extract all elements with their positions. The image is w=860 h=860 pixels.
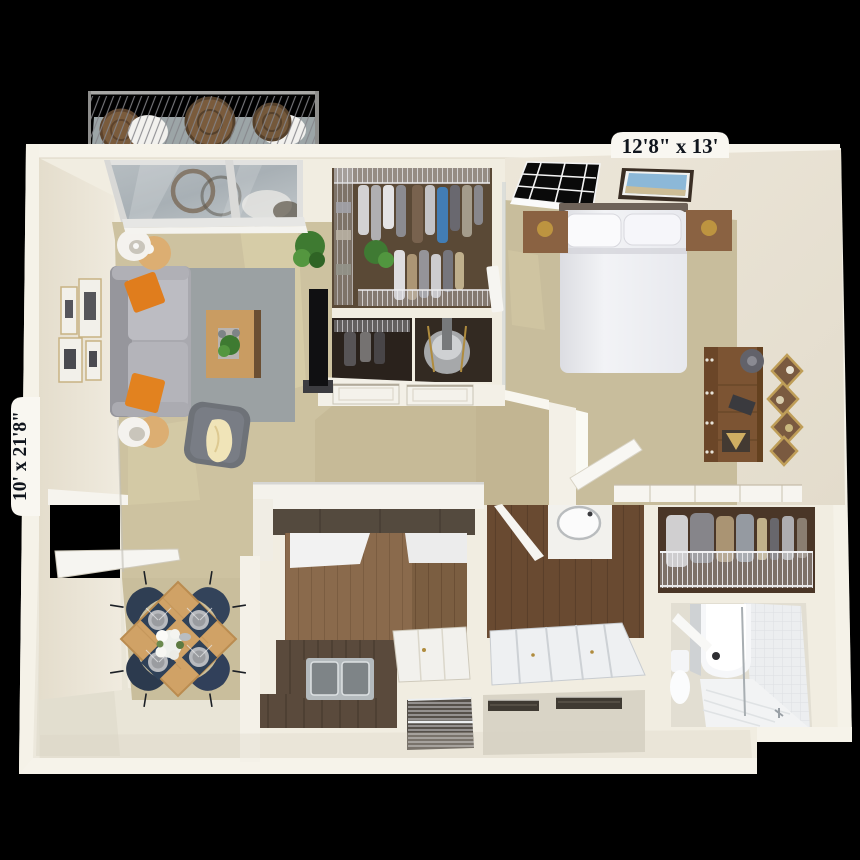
svg-text:10' x 21'8": 10' x 21'8" [10, 411, 31, 501]
svg-text:12'8" x 13': 12'8" x 13' [622, 134, 719, 158]
